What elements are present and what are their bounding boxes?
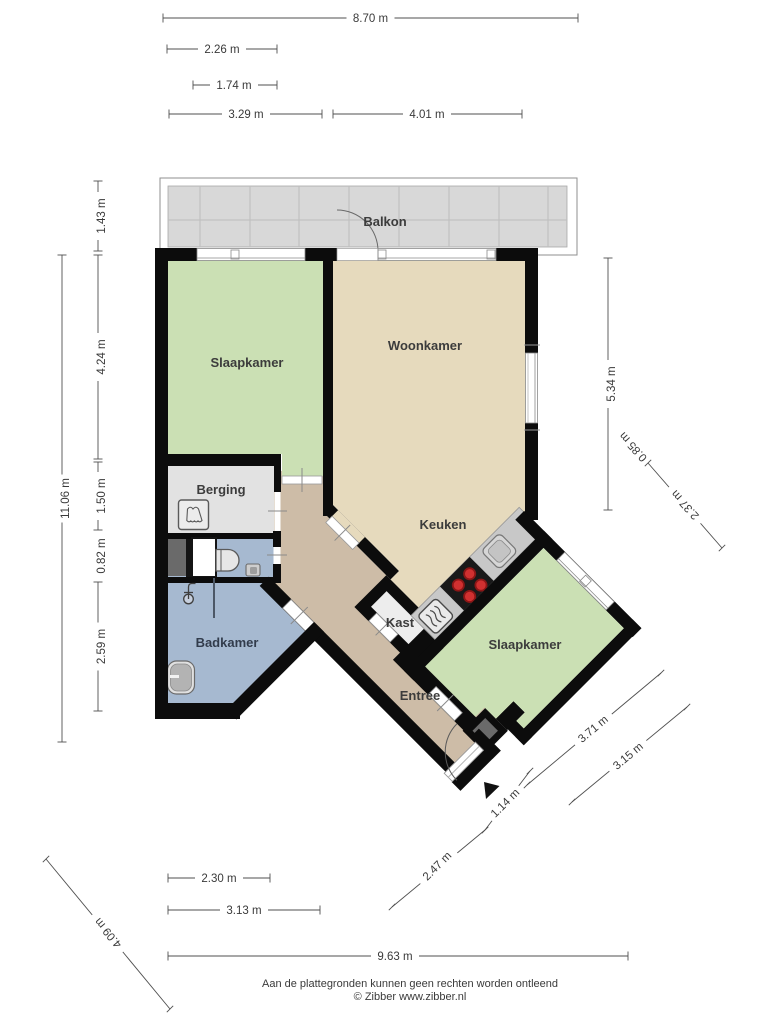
svg-text:Keuken: Keuken bbox=[420, 517, 467, 532]
svg-text:Slaapkamer: Slaapkamer bbox=[489, 637, 562, 652]
svg-text:1.50 m: 1.50 m bbox=[96, 478, 108, 513]
svg-text:11.06 m: 11.06 m bbox=[60, 478, 72, 519]
svg-text:3.29 m: 3.29 m bbox=[228, 109, 263, 121]
svg-text:5.34 m: 5.34 m bbox=[606, 366, 618, 401]
svg-text:Berging: Berging bbox=[196, 482, 245, 497]
svg-text:8.70 m: 8.70 m bbox=[353, 13, 388, 25]
svg-text:Kast: Kast bbox=[386, 615, 415, 630]
svg-text:1.74 m: 1.74 m bbox=[216, 80, 251, 92]
svg-text:9.63 m: 9.63 m bbox=[377, 951, 412, 963]
svg-text:© Zibber www.zibber.nl: © Zibber www.zibber.nl bbox=[354, 991, 467, 1003]
svg-text:Balkon: Balkon bbox=[363, 214, 406, 229]
svg-text:4.24 m: 4.24 m bbox=[96, 339, 108, 374]
svg-text:Woonkamer: Woonkamer bbox=[388, 338, 462, 353]
svg-text:2.30 m: 2.30 m bbox=[201, 873, 236, 885]
svg-text:3.13 m: 3.13 m bbox=[226, 905, 261, 917]
svg-text:Entree: Entree bbox=[400, 688, 440, 703]
svg-text:0.82 m: 0.82 m bbox=[96, 538, 108, 573]
svg-text:4.01 m: 4.01 m bbox=[409, 109, 444, 121]
svg-text:2.26 m: 2.26 m bbox=[204, 44, 239, 56]
svg-text:Slaapkamer: Slaapkamer bbox=[211, 355, 284, 370]
svg-text:1.43 m: 1.43 m bbox=[96, 198, 108, 233]
svg-text:Badkamer: Badkamer bbox=[196, 635, 259, 650]
svg-text:2.59 m: 2.59 m bbox=[96, 629, 108, 664]
svg-text:Aan de plattegronden kunnen ge: Aan de plattegronden kunnen geen rechten… bbox=[262, 978, 558, 990]
